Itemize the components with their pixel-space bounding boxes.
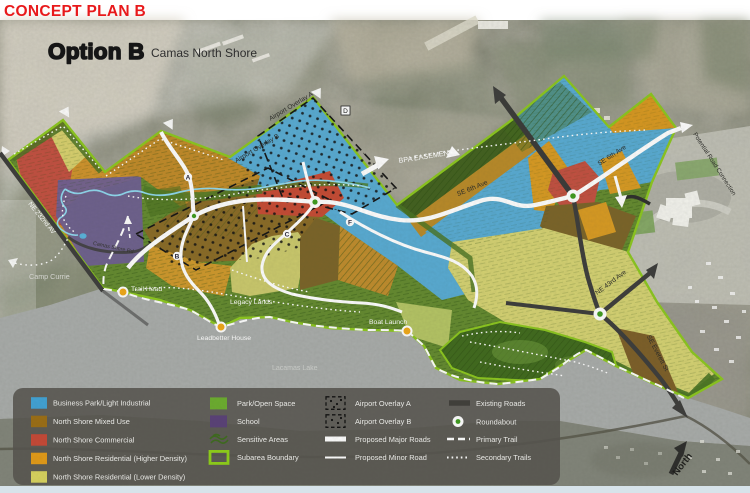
svg-text:CONCEPT PLAN B: CONCEPT PLAN B [4, 3, 146, 20]
svg-text:Option B: Option B [48, 39, 145, 64]
svg-text:Camas North Shore: Camas North Shore [151, 46, 257, 60]
